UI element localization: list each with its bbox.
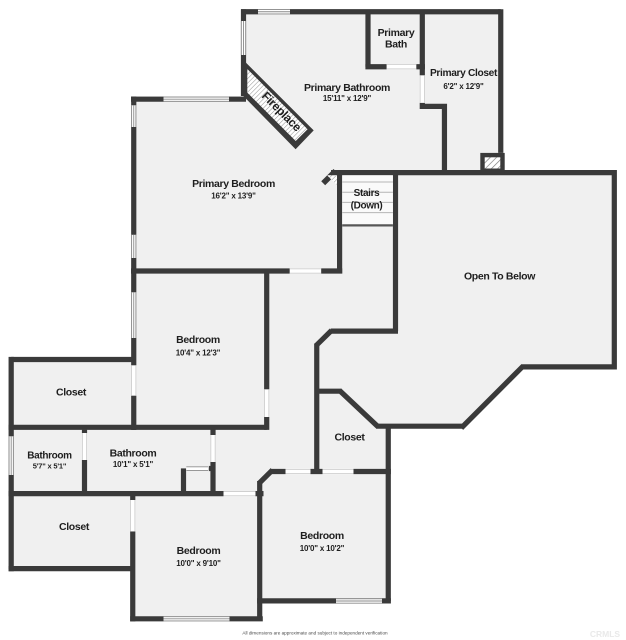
svg-text:Bathroom: Bathroom [27, 451, 72, 462]
svg-text:Bedroom: Bedroom [176, 334, 220, 346]
svg-text:Primary: Primary [378, 27, 415, 39]
svg-text:16'2" x 13'9": 16'2" x 13'9" [211, 192, 256, 201]
svg-text:Bathroom: Bathroom [110, 448, 157, 460]
svg-text:Bedroom: Bedroom [300, 530, 344, 542]
svg-text:10'4" x 12'3": 10'4" x 12'3" [176, 349, 221, 358]
svg-text:5'7" x 5'1": 5'7" x 5'1" [33, 461, 67, 470]
svg-text:Primary Bathroom: Primary Bathroom [304, 82, 390, 94]
svg-text:Primary Closet: Primary Closet [430, 68, 498, 79]
svg-text:Stairs: Stairs [354, 188, 380, 199]
svg-text:Closet: Closet [59, 521, 90, 533]
svg-text:(Down): (Down) [351, 201, 383, 212]
svg-text:All dimensions are approximate: All dimensions are approximate and subje… [242, 631, 388, 636]
svg-text:Bedroom: Bedroom [177, 545, 221, 557]
svg-text:Closet: Closet [335, 432, 366, 444]
svg-text:Open To Below: Open To Below [464, 271, 536, 283]
svg-text:10'0" x 9'10": 10'0" x 9'10" [176, 559, 221, 568]
svg-text:Closet: Closet [56, 387, 87, 399]
svg-text:6'2" x 12'9": 6'2" x 12'9" [443, 82, 484, 91]
svg-text:10'1" x 5'1": 10'1" x 5'1" [113, 460, 154, 469]
svg-text:10'0" x 10'2": 10'0" x 10'2" [300, 544, 345, 553]
svg-text:Primary Bedroom: Primary Bedroom [192, 178, 275, 190]
svg-text:Bath: Bath [385, 39, 407, 51]
svg-text:CRMLS: CRMLS [590, 629, 621, 639]
svg-text:15'11" x 12'9": 15'11" x 12'9" [323, 94, 372, 103]
